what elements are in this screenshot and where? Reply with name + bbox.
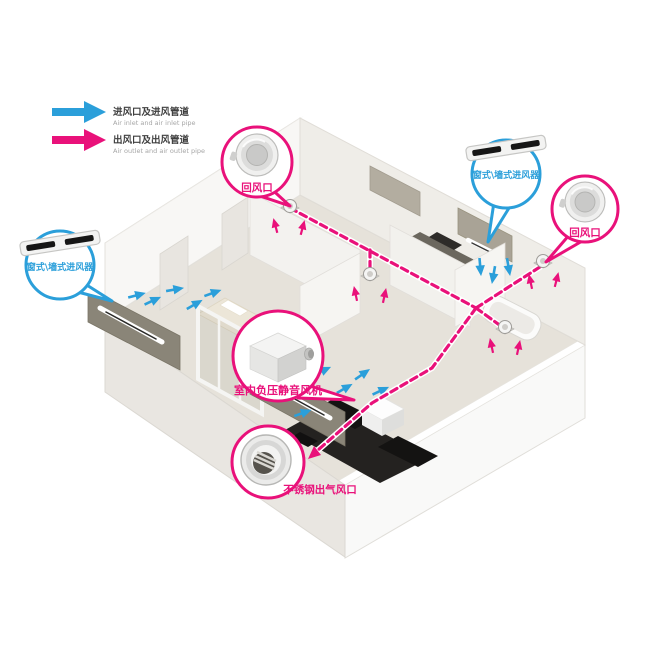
diagram-canvas: 进风口及进风管道 Air inlet and air inlet pipe 出风… (0, 0, 650, 656)
callout-label: 不锈钢出气风口 (283, 483, 357, 496)
outlet-arrow-icon (52, 129, 106, 151)
ventilation-system-diagram: 进风口及进风管道 Air inlet and air inlet pipe 出风… (0, 0, 650, 656)
legend-item-inlet: 进风口及进风管道 Air inlet and air inlet pipe (52, 101, 196, 127)
callout-window-wall-inlet-left: 窗式\墙式进风器 (19, 230, 112, 301)
legend-outlet-en: Air outlet and air outlet pipe (113, 147, 205, 155)
stainless-outlet-image (241, 435, 291, 485)
callout-label: 回风口 (569, 227, 601, 239)
callout-label: 窗式\墙式进风器 (27, 261, 94, 273)
legend-inlet-en: Air inlet and air inlet pipe (113, 119, 196, 127)
legend-outlet-zh: 出风口及出风管道 (113, 134, 190, 146)
callout-label: 室内负压静音风机 (234, 383, 322, 397)
legend-item-outlet: 出风口及出风管道 Air outlet and air outlet pipe (52, 129, 205, 155)
callout-label: 回风口 (241, 182, 273, 194)
inlet-arrow-icon (52, 101, 106, 123)
legend-inlet-zh: 进风口及进风管道 (113, 106, 190, 118)
callout-label: 窗式\墙式进风器 (473, 169, 540, 181)
callout-return-air-right: 回风口 (546, 176, 618, 262)
legend: 进风口及进风管道 Air inlet and air inlet pipe 出风… (52, 101, 205, 155)
